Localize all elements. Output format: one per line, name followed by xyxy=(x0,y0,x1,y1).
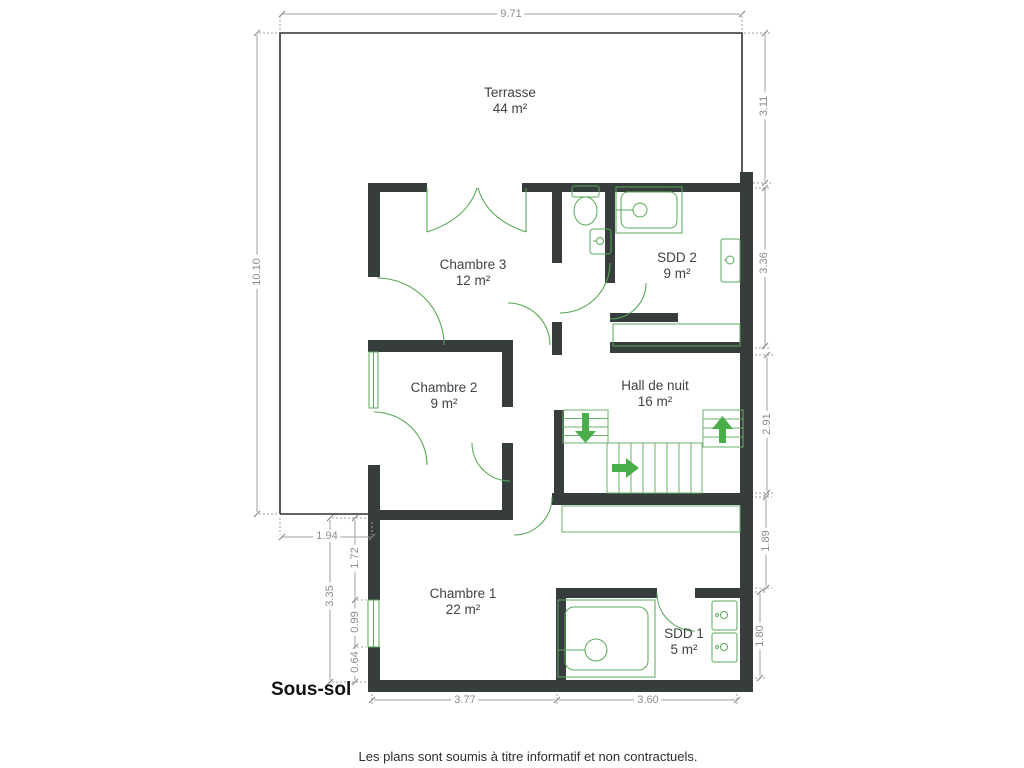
sdd1-sink-icons xyxy=(712,601,737,662)
room-label-terrasse: Terrasse 44 m² xyxy=(484,85,536,117)
dimension-c1-window: 0.99 xyxy=(349,608,361,635)
room-name: Hall de nuit xyxy=(621,378,689,394)
room-name: SDD 1 xyxy=(664,626,704,642)
sdd2-bathtub-icon xyxy=(616,187,682,233)
sdd1-bathtub-icon xyxy=(558,600,655,677)
sdd2-sink-icon xyxy=(721,239,740,282)
dimension-sdd2-height: 3.36 xyxy=(758,249,770,276)
room-label-sdd1: SDD 1 5 m² xyxy=(664,626,704,658)
room-area: 9 m² xyxy=(411,396,478,412)
dimension-right-top: 3.11 xyxy=(758,93,770,120)
dimension-right-mid: 1.89 xyxy=(760,527,772,554)
dimension-c1-left-upper: 1.72 xyxy=(349,544,361,571)
dimension-terrace-height: 10.10 xyxy=(251,255,263,289)
stair-direction-arrows xyxy=(575,413,733,478)
room-name: Chambre 2 xyxy=(411,380,478,396)
room-label-chambre3: Chambre 3 12 m² xyxy=(440,257,507,289)
room-area: 16 m² xyxy=(621,394,689,410)
room-area: 9 m² xyxy=(657,266,697,282)
room-label-chambre1: Chambre 1 22 m² xyxy=(430,586,497,618)
room-name: Terrasse xyxy=(484,85,536,101)
arrow-down-icon xyxy=(575,413,596,443)
dimension-sdd1-height: 1.80 xyxy=(754,622,766,649)
dimension-bottom-right: 3.60 xyxy=(634,694,661,706)
room-area: 5 m² xyxy=(664,642,704,658)
closet-under-stairs xyxy=(562,506,740,532)
arrow-right-icon xyxy=(612,458,639,478)
room-label-sdd2: SDD 2 9 m² xyxy=(657,250,697,282)
dimension-bottom-left: 3.77 xyxy=(451,694,478,706)
dimension-terrace-width: 9.71 xyxy=(497,8,524,20)
dimension-terrace-left-strip: 1.94 xyxy=(313,530,340,542)
floor-plan-page: Terrasse 44 m² Chambre 3 12 m² SDD 2 9 m… xyxy=(0,0,1024,768)
room-area: 44 m² xyxy=(484,101,536,117)
dimension-c1-left-lower: 0.64 xyxy=(349,648,361,675)
arrow-up-icon xyxy=(712,416,733,443)
room-label-chambre2: Chambre 2 9 m² xyxy=(411,380,478,412)
room-area: 12 m² xyxy=(440,273,507,289)
room-name: SDD 2 xyxy=(657,250,697,266)
disclaimer-text: Les plans sont soumis à titre informatif… xyxy=(359,749,698,764)
room-label-hall: Hall de nuit 16 m² xyxy=(621,378,689,410)
room-name: Chambre 1 xyxy=(430,586,497,602)
dimension-hall-height: 2.91 xyxy=(761,410,773,437)
floor-name: Sous-sol xyxy=(271,679,351,701)
dimension-c1-left-total: 3.35 xyxy=(324,582,336,609)
room-area: 22 m² xyxy=(430,602,497,618)
room-name: Chambre 3 xyxy=(440,257,507,273)
